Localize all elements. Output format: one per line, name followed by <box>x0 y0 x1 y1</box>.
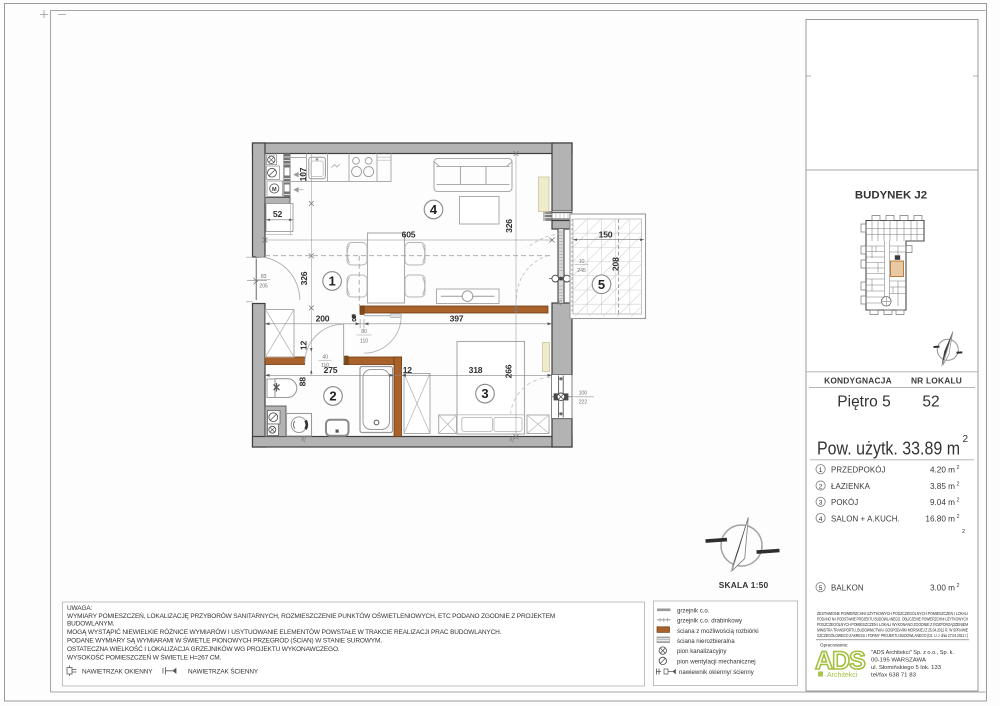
svg-text:397: 397 <box>450 313 464 323</box>
svg-text:205: 205 <box>259 283 268 289</box>
svg-text:MINISTRA TRANSPORTU, BUDOWNICT: MINISTRA TRANSPORTU, BUDOWNICTWA I GOSPO… <box>817 628 968 633</box>
svg-text:BALKON: BALKON <box>831 584 864 593</box>
svg-text:2: 2 <box>957 465 960 471</box>
svg-text:"ADS Architekci" Sp. z o.o., S: "ADS Architekci" Sp. z o.o., Sp. k. <box>871 650 954 656</box>
svg-text:ŁAZIENKA: ŁAZIENKA <box>831 482 871 491</box>
svg-text:2: 2 <box>819 483 823 490</box>
svg-text:2: 2 <box>962 529 965 535</box>
svg-text:pion kanalizacyjny: pion kanalizacyjny <box>677 648 727 655</box>
svg-text:MOGĄ WYSTĄPIĆ NIEWIELKIE RÓŻNI: MOGĄ WYSTĄPIĆ NIEWIELKIE RÓŻNICE WYMIARÓ… <box>67 627 502 636</box>
svg-text:2: 2 <box>957 498 960 504</box>
svg-text:pion wentylacji mechanicznej: pion wentylacji mechanicznej <box>677 659 756 666</box>
svg-text:52: 52 <box>922 394 939 411</box>
svg-text:10: 10 <box>579 259 585 265</box>
svg-text:9.04 m: 9.04 m <box>930 498 955 507</box>
svg-text:4: 4 <box>819 516 823 523</box>
svg-text:8: 8 <box>352 313 357 323</box>
svg-text:BUDOWLANYM.: BUDOWLANYM. <box>67 621 115 628</box>
svg-text:110: 110 <box>360 338 368 344</box>
svg-text:83: 83 <box>261 274 267 280</box>
svg-text:150: 150 <box>599 229 613 239</box>
svg-text:100: 100 <box>579 391 588 397</box>
svg-text:WYMIARY POMIESZCZEŃ, LOKALIZAC: WYMIARY POMIESZCZEŃ, LOKALIZACJĘ PRZYBOR… <box>67 611 555 620</box>
svg-text:3: 3 <box>481 386 488 401</box>
svg-text:ściana z możliwością rozbiórki: ściana z możliwością rozbiórki <box>677 628 759 635</box>
svg-text:ul. Słomińskiego 5 lok. 133: ul. Słomińskiego 5 lok. 133 <box>871 665 941 671</box>
svg-text:nawiewnik okienny/ ścienny: nawiewnik okienny/ ścienny <box>679 669 755 676</box>
svg-text:52: 52 <box>273 209 283 219</box>
svg-text:605: 605 <box>402 230 416 240</box>
svg-text:326: 326 <box>504 219 514 233</box>
svg-text:222: 222 <box>579 400 588 406</box>
svg-text:40: 40 <box>322 355 328 361</box>
svg-text:SZCZEGÓŁOWEGO ZAKRESU I FORMY: SZCZEGÓŁOWEGO ZAKRESU I FORMY PROJEKTU B… <box>817 632 969 638</box>
svg-text:00-195 WARSZAWA: 00-195 WARSZAWA <box>871 658 926 664</box>
svg-text:16.80 m: 16.80 m <box>925 514 955 523</box>
svg-text:Pow. użytk. 33.89 m: Pow. użytk. 33.89 m <box>817 439 960 459</box>
svg-text:1: 1 <box>819 467 823 474</box>
svg-text:BUDYNEK J2: BUDYNEK J2 <box>855 190 927 202</box>
svg-text:SKALA 1:50: SKALA 1:50 <box>719 580 769 590</box>
svg-text:POSZCZEGÓLNYCH POMIESZCZEŃ I L: POSZCZEGÓLNYCH POMIESZCZEŃ I LOKALI WYKO… <box>817 621 968 627</box>
svg-text:266: 266 <box>504 364 514 378</box>
svg-text:grzejnik c.o. drabinkowy: grzejnik c.o. drabinkowy <box>677 618 743 625</box>
svg-text:2: 2 <box>963 434 969 445</box>
svg-text:80: 80 <box>361 329 367 335</box>
svg-text:88: 88 <box>297 377 307 387</box>
svg-text:SALON + A.KUCH.: SALON + A.KUCH. <box>831 514 900 523</box>
svg-text:3.00 m: 3.00 m <box>930 584 955 593</box>
svg-text:275: 275 <box>324 365 338 375</box>
svg-text:PODANO NA PODSTAWIE PROJEKTU B: PODANO NA PODSTAWIE PROJEKTU BUDOWLANEGO… <box>817 616 968 622</box>
svg-text:4.20 m: 4.20 m <box>930 466 955 475</box>
svg-text:ZESTAWIONE POWIERZCHNI UŻYTKOW: ZESTAWIONE POWIERZCHNI UŻYTKOWYCH POSZCZ… <box>817 610 968 616</box>
svg-text:PRZEDPOKÓJ: PRZEDPOKÓJ <box>831 466 886 475</box>
svg-text:5: 5 <box>598 277 605 292</box>
svg-text:POKÓJ: POKÓJ <box>831 498 858 507</box>
svg-text:208: 208 <box>611 257 621 271</box>
svg-text:2: 2 <box>957 481 960 487</box>
svg-text:12: 12 <box>403 365 413 375</box>
svg-text:WYSOKOŚĆ POMIESZCZEŃ W ŚWIETLE: WYSOKOŚĆ POMIESZCZEŃ W ŚWIETLE H=267 CM. <box>67 653 222 662</box>
svg-text:5: 5 <box>819 585 823 592</box>
svg-text:2: 2 <box>329 389 336 404</box>
svg-text:12: 12 <box>298 341 308 351</box>
svg-text:grzejnik c.o.: grzejnik c.o. <box>677 608 710 615</box>
svg-text:Piętro 5: Piętro 5 <box>837 394 890 411</box>
svg-text:3.85 m: 3.85 m <box>930 482 955 491</box>
svg-text:KONDYGNACJA: KONDYGNACJA <box>824 376 892 386</box>
svg-text:NAWIETRZAK OKIENNY: NAWIETRZAK OKIENNY <box>82 669 153 676</box>
svg-text:107: 107 <box>298 167 308 181</box>
svg-text:2: 2 <box>957 583 960 589</box>
svg-text:1: 1 <box>328 274 335 289</box>
svg-text:326: 326 <box>299 271 309 285</box>
svg-text:OSTATECZNA WIELKOŚĆ I LOKALIZA: OSTATECZNA WIELKOŚĆ I LOKALIZACJA GRZEJN… <box>67 644 340 653</box>
svg-text:UWAGA:: UWAGA: <box>67 605 93 612</box>
svg-text:245: 245 <box>577 268 586 274</box>
svg-text:3: 3 <box>819 500 823 507</box>
svg-text:NAWIETRZAK ŚCIENNY: NAWIETRZAK ŚCIENNY <box>188 667 259 676</box>
svg-text:ściana nierozbieralna: ściana nierozbieralna <box>677 638 735 645</box>
svg-text:4: 4 <box>430 202 438 217</box>
svg-text:Architekci: Architekci <box>827 672 858 679</box>
svg-text:2: 2 <box>957 514 960 520</box>
svg-text:tel/fax 638 71 83: tel/fax 638 71 83 <box>871 673 916 679</box>
svg-text:ADS: ADS <box>815 647 865 675</box>
svg-text:200: 200 <box>316 313 330 323</box>
svg-text:PODANE WYMIARY SĄ WYMIARAMI W: PODANE WYMIARY SĄ WYMIARAMI W ŚWIETLE PI… <box>67 636 382 645</box>
svg-text:M: M <box>272 187 277 193</box>
svg-text:NR LOKALU: NR LOKALU <box>911 376 962 386</box>
svg-text:318: 318 <box>469 365 483 375</box>
